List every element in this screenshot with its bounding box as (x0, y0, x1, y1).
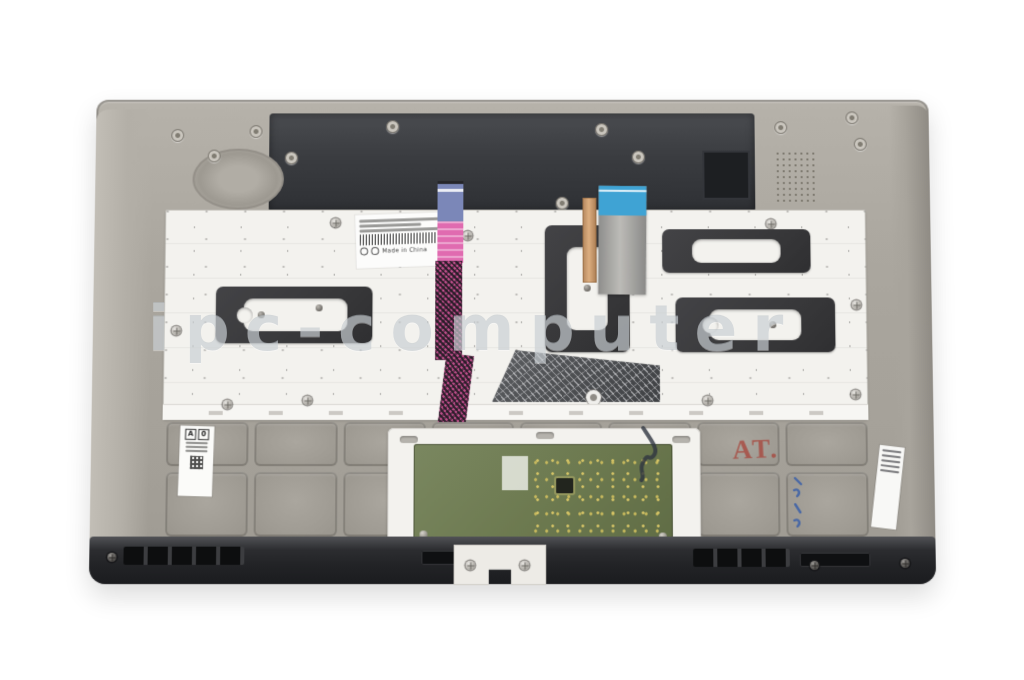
screw-boss (595, 123, 608, 136)
sticker-text-line (186, 446, 208, 449)
chassis-left-wall (89, 110, 154, 567)
speaker-vent (693, 549, 790, 567)
rivet (584, 285, 591, 292)
hinge-module (702, 151, 750, 200)
adhesive-patch (662, 229, 811, 272)
trim-screw (810, 561, 819, 570)
speaker-grille (775, 151, 817, 202)
trim-screw (107, 553, 116, 562)
trim-screw (901, 559, 910, 568)
touchpad-pcb (413, 444, 673, 547)
plate-screw (851, 390, 860, 399)
patch-keyhole (237, 307, 253, 323)
screw-boss (285, 152, 298, 165)
screw-boss (632, 151, 645, 164)
ribbon-stiffener-purple (437, 184, 463, 221)
frame-slot (672, 436, 690, 443)
touchpad-controller-chip (556, 478, 573, 493)
plate-screw (703, 396, 712, 405)
keyboard-ribbon-cable (598, 186, 646, 295)
ul-mark-icon (371, 247, 379, 255)
bracket-screw (520, 561, 529, 570)
pocket (697, 472, 780, 536)
frame-slot (400, 436, 418, 443)
rivet (316, 304, 323, 311)
sticker-text-line (882, 454, 901, 458)
plate-bottom-strip (163, 404, 869, 420)
frame-slot (536, 432, 554, 439)
sticker-text-line (881, 464, 900, 468)
touchpad-ribbon-top (437, 221, 463, 262)
screw-boss (171, 129, 184, 142)
patch-cutout (244, 298, 348, 331)
plate-screw (223, 400, 232, 409)
screw-boss (386, 120, 399, 133)
pen-mark (635, 424, 671, 484)
adhesive-patch (216, 287, 373, 344)
keyboard-backplate: Made in China (163, 210, 869, 420)
label-country-text: Made in China (382, 246, 427, 254)
screw-boss (854, 138, 867, 151)
label-barcode (360, 232, 449, 246)
plate-screw (852, 300, 861, 309)
screw-boss (845, 111, 858, 124)
patch-cutout (692, 239, 781, 263)
patch-keyhole (702, 317, 718, 333)
sticker-text-line (880, 469, 899, 473)
screw-boss (250, 125, 263, 138)
sticker-text-line (881, 459, 900, 463)
speaker-vent (123, 547, 244, 565)
bracket-screw (466, 561, 475, 570)
top-interior-panel (269, 113, 756, 211)
plate-screw (766, 219, 775, 228)
copper-backlight-strip (582, 198, 596, 283)
sticker-text-line (882, 449, 901, 453)
pocket (254, 472, 337, 536)
screw-boss (208, 150, 221, 163)
sticker-box-b: 0 (198, 429, 209, 440)
palmrest-assembly: Made in China (89, 100, 936, 584)
plate-screw (303, 396, 312, 405)
rivet (769, 321, 776, 328)
plate-screw (172, 326, 181, 335)
sticker-text-line (185, 450, 207, 453)
patch-cutout (709, 309, 801, 340)
plate-screw (463, 231, 472, 240)
screw-boss (774, 121, 787, 134)
sticker-box-a: A (185, 429, 196, 440)
screw-boss (556, 197, 569, 210)
screw-grommet (586, 390, 601, 405)
pocket (785, 422, 868, 466)
sticker-text-line (186, 442, 208, 445)
pocket (254, 422, 337, 466)
plate-screw (331, 218, 340, 227)
pcb-sticker (502, 456, 528, 490)
service-sticker-left: A 0 (178, 426, 215, 497)
certification-mark-icon (360, 247, 368, 255)
adhesive-patch (675, 297, 835, 352)
touchpad-ribbon-mesh (435, 261, 462, 360)
datamatrix-code (189, 456, 203, 469)
product-photo: Made in China (0, 0, 1024, 680)
red-ink-stamp: AT. (732, 433, 780, 466)
blue-ink-mark (789, 474, 808, 530)
speaker-pocket (192, 149, 284, 210)
keyboard-flex-tail (492, 350, 660, 402)
ribbon-stiffener-cyan (599, 186, 647, 216)
rivet (258, 311, 265, 318)
label-text-line (359, 217, 447, 223)
